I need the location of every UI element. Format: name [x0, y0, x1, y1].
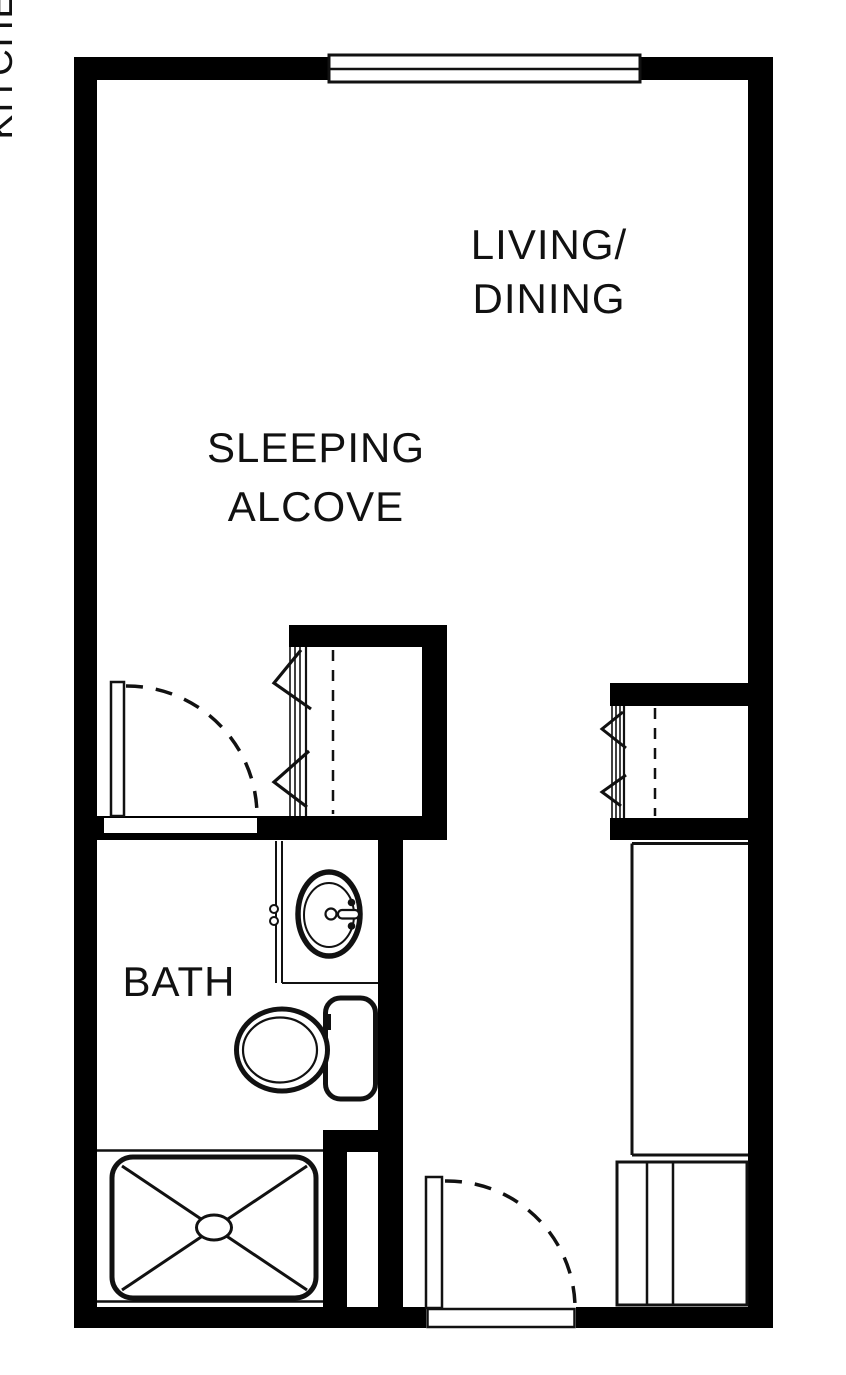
sleeping-alcove-label: SLEEPING ALCOVE: [166, 425, 466, 543]
sink-faucet-handle: [348, 899, 356, 907]
wall-left: [74, 57, 97, 1328]
living-dining-label: LIVING/ DINING: [430, 222, 668, 330]
wall-closet-kitchen-top: [610, 683, 748, 706]
wall-bottom-left: [74, 1307, 426, 1328]
bifold-closet-kitchen-symbol: [602, 706, 655, 818]
door-leaf: [426, 1177, 442, 1308]
door-leaf: [111, 682, 124, 816]
floor-plan: LIVING/ DINING SLEEPING ALCOVE BATH KITC…: [0, 0, 846, 1375]
bifold-door-chevron: [274, 751, 309, 807]
vanity-hinge-bump: [270, 917, 278, 925]
living-dining-line2: DINING: [430, 276, 668, 322]
wall-closet-kitchen-bottom: [610, 818, 748, 840]
wall-closet-alcove-right: [422, 647, 447, 816]
wall-shower-side: [323, 1152, 347, 1307]
bath-door-symbol: [111, 682, 257, 816]
entry-door-symbol: [426, 1177, 575, 1327]
sink-faucet-handle: [348, 922, 356, 930]
toilet-flush-handle: [325, 1014, 331, 1030]
shower-symbol: [97, 1151, 323, 1302]
wall-chase-stub: [323, 1130, 403, 1152]
toilet-bowl-outer: [237, 1009, 328, 1091]
bifold-door-chevron: [602, 712, 626, 748]
vanity-hinge-bump: [270, 905, 278, 913]
bath-label: BATH: [104, 958, 254, 1006]
appliance-outline: [617, 1162, 747, 1305]
walls: [74, 57, 773, 1328]
sink-faucet-spout: [338, 910, 359, 919]
kitchenette-label-text: KITCHENETTE: [0, 0, 21, 139]
sleeping-alcove-line2: ALCOVE: [166, 484, 466, 530]
door-swing-arc: [445, 1181, 575, 1305]
floor-plan-drawing: [0, 0, 846, 1375]
kitchenette-appliance-symbol: [617, 1162, 747, 1305]
wall-right: [748, 57, 773, 1328]
window-symbol: [329, 55, 640, 82]
wall-bottom-right: [576, 1307, 773, 1328]
kitchenette-counter-symbol: [632, 844, 748, 1156]
bath-door-opening: [104, 818, 257, 833]
entry-threshold: [428, 1309, 575, 1327]
door-swing-arc: [126, 686, 257, 814]
bifold-door-chevron: [602, 775, 626, 806]
sink-symbol: [298, 872, 360, 956]
sleeping-alcove-line1: SLEEPING: [166, 425, 466, 471]
wall-top-left: [74, 57, 329, 80]
living-dining-line1: LIVING/: [430, 222, 668, 268]
wall-closet-alcove-top: [289, 625, 447, 647]
sink-drain: [326, 909, 337, 920]
toilet-symbol: [237, 998, 376, 1099]
toilet-tank: [326, 998, 376, 1099]
wall-hall-vertical: [378, 840, 403, 1307]
shower-drain: [197, 1215, 232, 1240]
bifold-closet-alcove-symbol: [274, 647, 333, 816]
